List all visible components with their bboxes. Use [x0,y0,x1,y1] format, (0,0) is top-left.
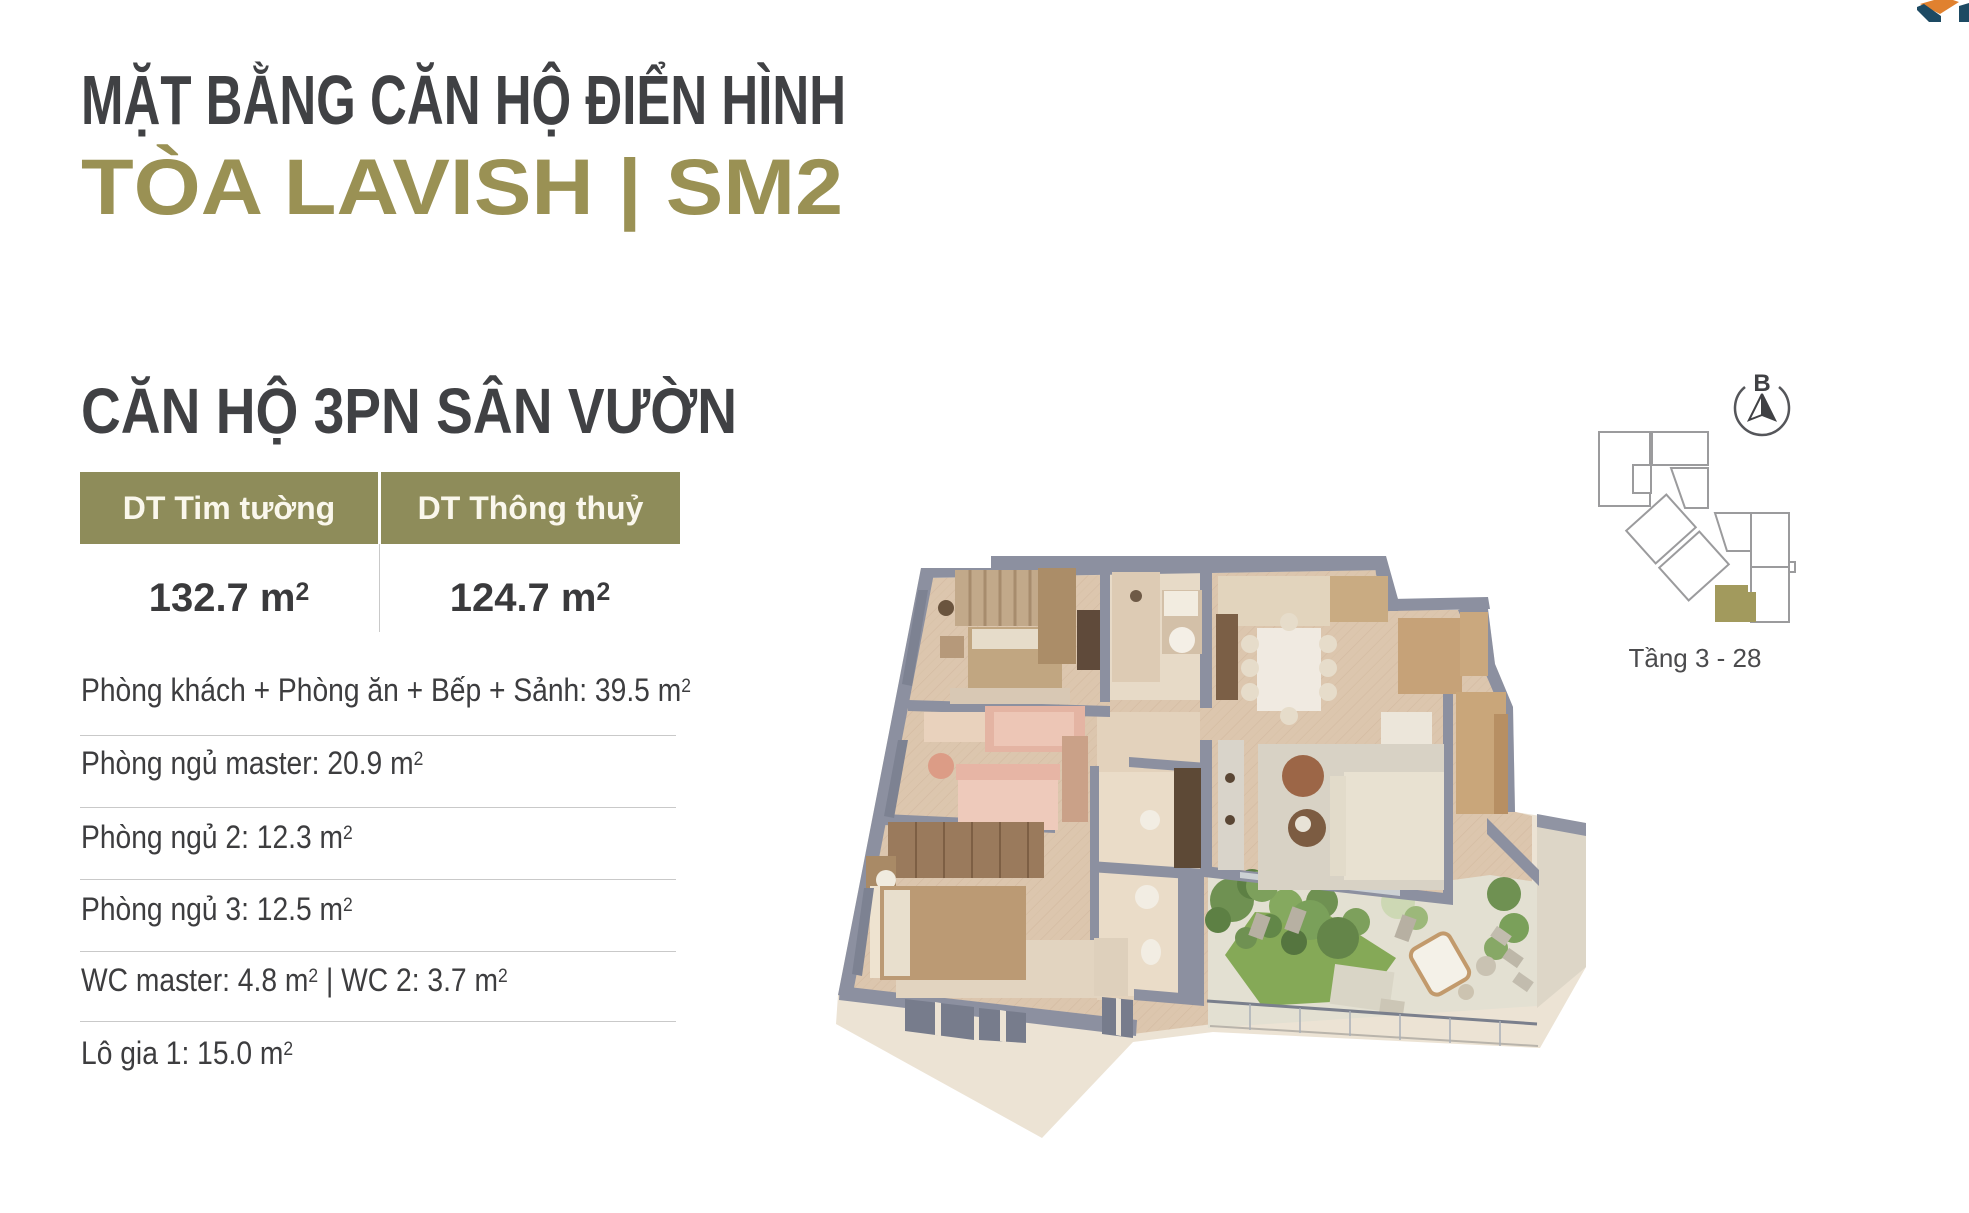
svg-text:B: B [1753,370,1770,397]
